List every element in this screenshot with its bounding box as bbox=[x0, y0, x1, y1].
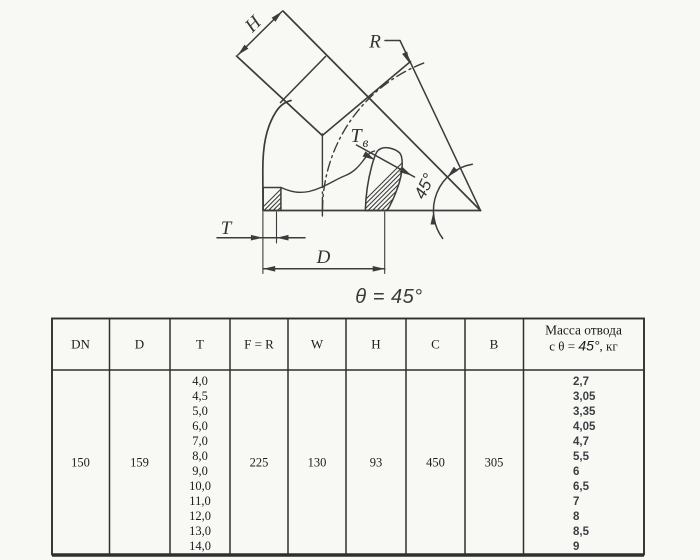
svg-text:F = R: F = R bbox=[244, 337, 274, 352]
svg-text:150: 150 bbox=[71, 456, 90, 470]
svg-text:5,5: 5,5 bbox=[573, 451, 590, 463]
svg-text:10,0: 10,0 bbox=[189, 479, 211, 493]
svg-text:450: 450 bbox=[426, 456, 445, 470]
svg-text:4,7: 4,7 bbox=[573, 436, 589, 448]
svg-text:225: 225 bbox=[250, 456, 269, 470]
svg-text:130: 130 bbox=[308, 456, 327, 470]
svg-text:12,0: 12,0 bbox=[189, 509, 211, 523]
svg-text:R: R bbox=[368, 32, 381, 53]
svg-text:D: D bbox=[316, 247, 331, 268]
svg-text:T: T bbox=[221, 218, 233, 239]
svg-text:6,5: 6,5 bbox=[573, 481, 590, 493]
svg-text:B: B bbox=[490, 337, 499, 352]
svg-text:8,0: 8,0 bbox=[192, 449, 208, 463]
svg-text:D: D bbox=[135, 337, 144, 352]
svg-text:7: 7 bbox=[573, 496, 579, 508]
svg-text:θ = 45°: θ = 45° bbox=[355, 286, 422, 308]
svg-text:4,0: 4,0 bbox=[192, 374, 208, 388]
svg-text:305: 305 bbox=[485, 456, 504, 470]
svg-text:14,0: 14,0 bbox=[189, 539, 211, 553]
svg-text:9,0: 9,0 bbox=[192, 464, 208, 478]
svg-text:6,0: 6,0 bbox=[192, 419, 208, 433]
svg-text:H: H bbox=[240, 11, 266, 37]
svg-text:5,0: 5,0 bbox=[192, 404, 208, 418]
svg-text:H: H bbox=[371, 337, 380, 352]
svg-text:9: 9 bbox=[573, 541, 579, 553]
svg-text:в: в bbox=[363, 135, 369, 150]
svg-text:8: 8 bbox=[573, 511, 580, 523]
svg-text:93: 93 bbox=[370, 456, 383, 470]
svg-text:T: T bbox=[196, 337, 204, 352]
svg-text:4,05: 4,05 bbox=[573, 421, 596, 433]
svg-text:4,5: 4,5 bbox=[192, 389, 208, 403]
svg-text:T: T bbox=[350, 125, 363, 147]
svg-text:3,05: 3,05 bbox=[573, 391, 596, 403]
svg-text:DN: DN bbox=[71, 337, 90, 352]
svg-text:45°: 45° bbox=[410, 170, 438, 202]
svg-text:159: 159 bbox=[130, 456, 149, 470]
svg-text:13,0: 13,0 bbox=[189, 524, 211, 538]
svg-text:2,7: 2,7 bbox=[573, 376, 589, 388]
svg-text:Масса отвода: Масса отвода bbox=[545, 323, 622, 338]
svg-text:3,35: 3,35 bbox=[573, 406, 596, 418]
svg-text:8,5: 8,5 bbox=[573, 526, 590, 538]
svg-text:с θ = 45°, кг: с θ = 45°, кг bbox=[549, 338, 617, 354]
svg-text:W: W bbox=[311, 337, 324, 352]
svg-text:6: 6 bbox=[573, 466, 579, 478]
svg-text:C: C bbox=[431, 337, 440, 352]
svg-text:7,0: 7,0 bbox=[192, 434, 208, 448]
svg-text:11,0: 11,0 bbox=[189, 494, 210, 508]
